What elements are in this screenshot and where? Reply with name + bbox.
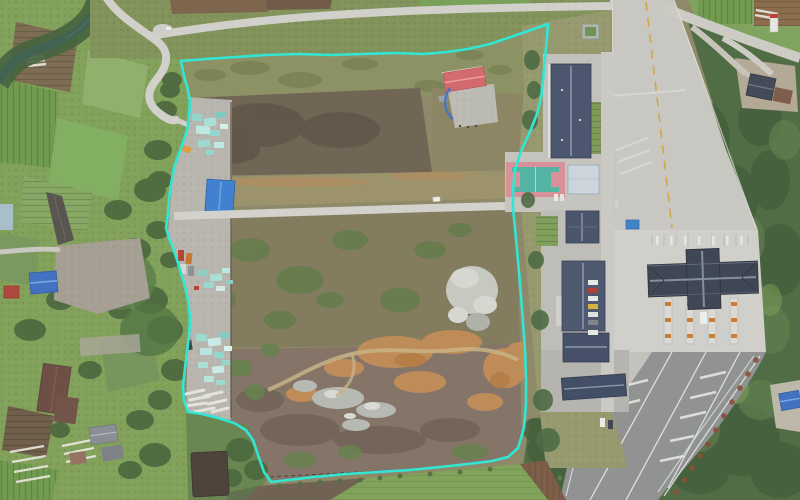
aerial-photo bbox=[0, 0, 800, 500]
haze-overlay bbox=[0, 0, 800, 500]
screenshot-root bbox=[0, 0, 800, 500]
